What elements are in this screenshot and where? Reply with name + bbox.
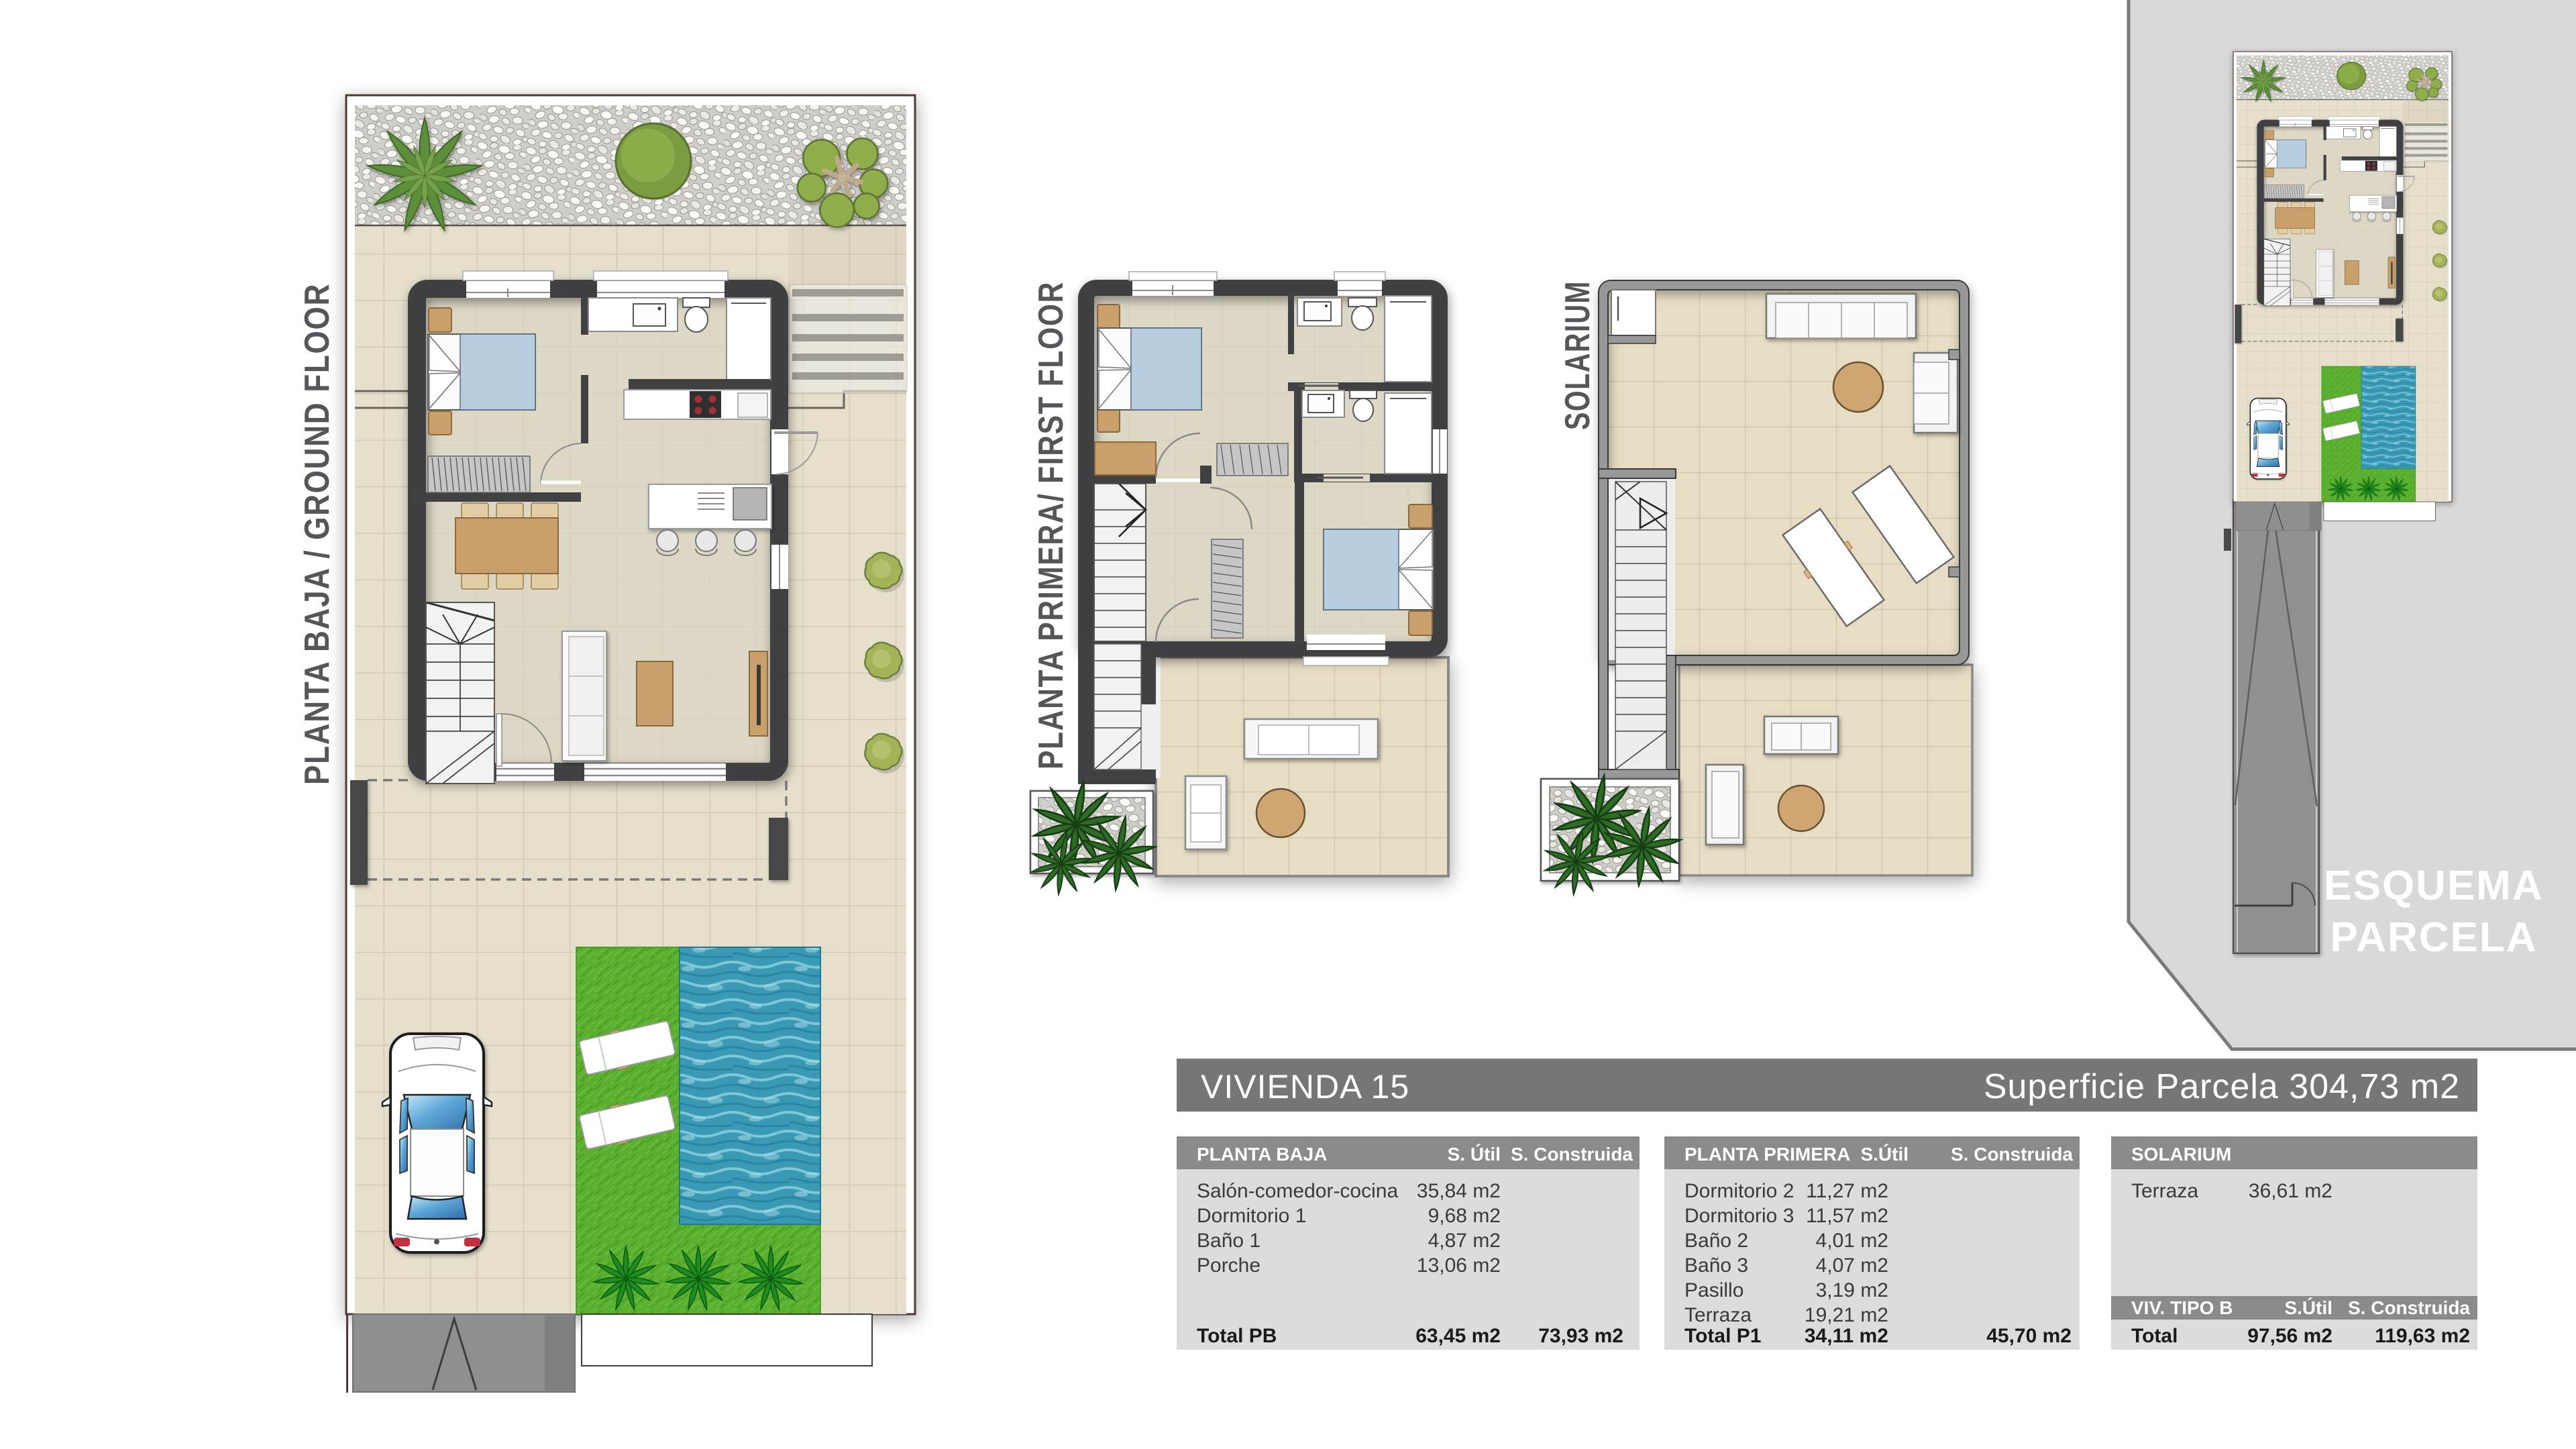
svg-text:Salón-comedor-cocina: Salón-comedor-cocina [1197,1180,1398,1202]
svg-text:35,84 m2: 35,84 m2 [1417,1180,1501,1202]
svg-text:19,21 m2: 19,21 m2 [1805,1304,1888,1326]
svg-text:4,01 m2: 4,01 m2 [1816,1230,1888,1252]
svg-text:4,07 m2: 4,07 m2 [1816,1254,1888,1277]
svg-text:S.Útil: S.Útil [2284,1297,2332,1318]
svg-text:PLANTA BAJA: PLANTA BAJA [1197,1144,1327,1165]
svg-text:S. Construida: S. Construida [1511,1144,1633,1165]
svg-text:Terraza: Terraza [1684,1304,1752,1326]
svg-text:36,61 m2: 36,61 m2 [2249,1180,2332,1202]
svg-text:Dormitorio 1: Dormitorio 1 [1197,1205,1306,1227]
svg-text:Baño 2: Baño 2 [1684,1230,1748,1252]
svg-text:73,93 m2: 73,93 m2 [1538,1325,1623,1347]
svg-text:Superficie Parcela 304,73 m2: Superficie Parcela 304,73 m2 [1984,1067,2460,1106]
svg-text:4,87 m2: 4,87 m2 [1428,1230,1501,1252]
svg-text:PARCELA: PARCELA [2330,914,2537,961]
svg-text:SOLARIUM: SOLARIUM [2131,1144,2231,1165]
svg-text:9,68 m2: 9,68 m2 [1428,1205,1501,1227]
svg-text:63,45 m2: 63,45 m2 [1415,1325,1501,1347]
svg-text:Dormitorio 2: Dormitorio 2 [1684,1180,1794,1202]
svg-text:45,70 m2: 45,70 m2 [1986,1325,2072,1347]
svg-text:13,06 m2: 13,06 m2 [1417,1254,1501,1277]
svg-text:SOLARIUM: SOLARIUM [1558,280,1597,430]
svg-text:Total PB: Total PB [1197,1325,1277,1347]
svg-text:ESQUEMA: ESQUEMA [2324,863,2543,909]
svg-text:Dormitorio 3: Dormitorio 3 [1684,1205,1794,1227]
svg-text:S.Útil: S.Útil [1860,1144,1909,1165]
svg-text:Pasillo: Pasillo [1684,1279,1743,1301]
svg-text:Terraza: Terraza [2131,1180,2198,1202]
svg-text:Total: Total [2131,1325,2178,1347]
svg-text:11,27 m2: 11,27 m2 [1806,1180,1888,1202]
svg-text:S. Construida: S. Construida [2348,1297,2470,1318]
svg-text:PLANTA BAJA / GROUND FLOOR: PLANTA BAJA / GROUND FLOOR [298,283,337,785]
svg-text:S. Útil: S. Útil [1448,1144,1501,1165]
svg-text:VIVIENDA 15: VIVIENDA 15 [1201,1068,1409,1106]
svg-text:VIV. TIPO B: VIV. TIPO B [2131,1297,2233,1318]
svg-text:11,57 m2: 11,57 m2 [1806,1205,1888,1227]
svg-text:Porche: Porche [1197,1254,1260,1277]
svg-text:PLANTA PRIMERA/ FIRST FLOOR: PLANTA PRIMERA/ FIRST FLOOR [1032,281,1071,769]
svg-text:S. Construida: S. Construida [1951,1144,2073,1165]
svg-text:Total P1: Total P1 [1684,1325,1761,1347]
svg-text:Baño 3: Baño 3 [1684,1254,1748,1277]
svg-text:34,11 m2: 34,11 m2 [1805,1325,1888,1347]
svg-text:3,19 m2: 3,19 m2 [1816,1279,1888,1301]
svg-text:PLANTA PRIMERA: PLANTA PRIMERA [1684,1144,1850,1165]
svg-text:97,56 m2: 97,56 m2 [2247,1325,2332,1347]
svg-text:119,63 m2: 119,63 m2 [2375,1325,2470,1347]
svg-text:Baño 1: Baño 1 [1197,1230,1260,1252]
